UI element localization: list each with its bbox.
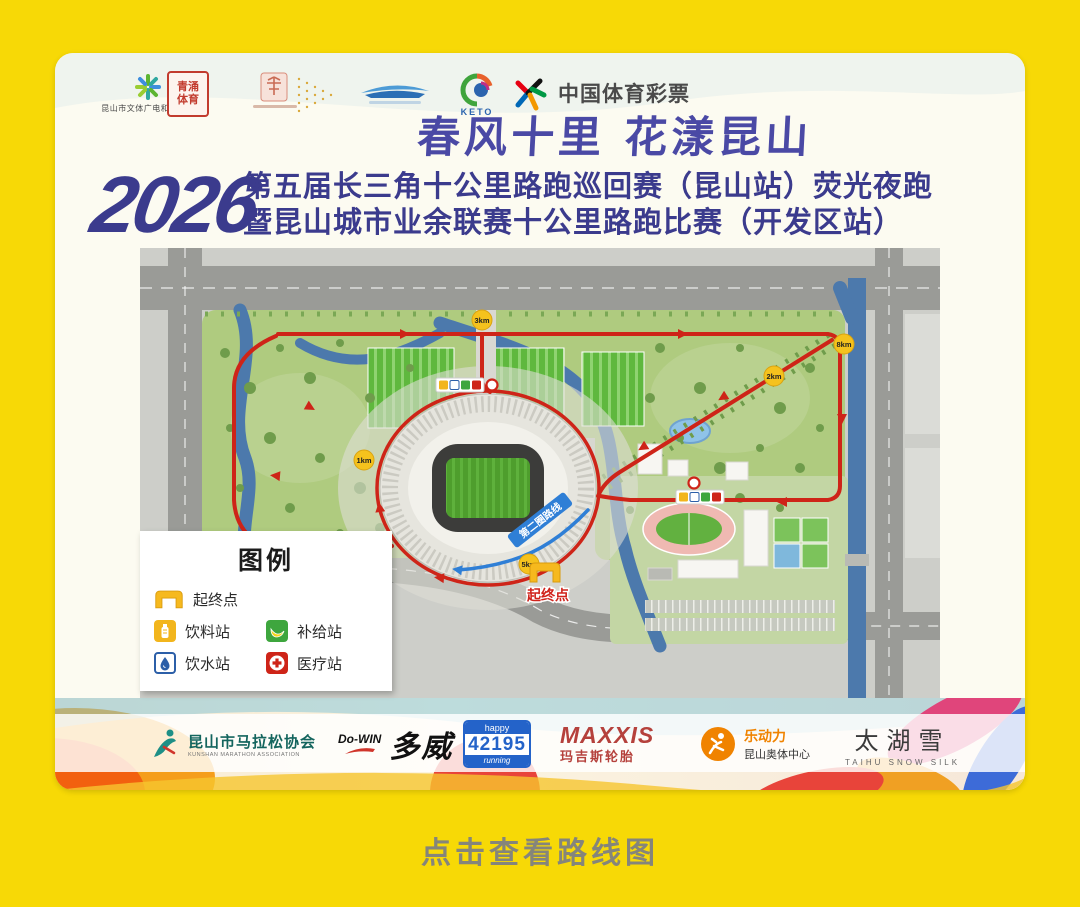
svg-text:3km: 3km bbox=[474, 316, 489, 325]
badge-number: 42195 bbox=[465, 734, 529, 755]
logo-suzhou-media-seal bbox=[233, 71, 353, 121]
canal-bridge bbox=[845, 554, 869, 566]
legend-drink-station: 饮料站 bbox=[154, 620, 266, 642]
legend-supply-label: 补给站 bbox=[297, 621, 342, 642]
event-slogan: 春风十里 花漾昆山 bbox=[373, 103, 856, 165]
legend-supply-station: 补给站 bbox=[266, 620, 378, 642]
sponsor-strip: 昆山市马拉松协会 KUNSHAN MARATHON ASSOCIATION Do… bbox=[55, 698, 1025, 790]
ledongli-name: 乐动力 bbox=[744, 726, 810, 746]
legend-water-station: 饮水站 bbox=[154, 652, 266, 674]
bureau-flower-icon bbox=[134, 73, 162, 101]
dowin-swoosh-icon bbox=[343, 746, 377, 756]
water-drop-icon bbox=[154, 652, 176, 674]
aid-station-north bbox=[436, 378, 498, 392]
bottle-icon bbox=[154, 620, 176, 642]
svg-text:8km: 8km bbox=[836, 340, 851, 349]
legend-start-label: 起终点 bbox=[193, 589, 238, 610]
event-title-line2: 暨昆山城市业余联赛十公里路跑比赛（开发区站） bbox=[243, 205, 1003, 241]
start-finish-label: 起终点 bbox=[526, 587, 569, 603]
gate-icon bbox=[154, 588, 184, 610]
association-name-en: KUNSHAN MARATHON ASSOCIATION bbox=[188, 752, 316, 758]
seal-characters: 青涌体育 bbox=[176, 81, 199, 106]
badge-happy: happy bbox=[465, 722, 529, 734]
keto-icon bbox=[460, 73, 494, 107]
legend-title: 图例 bbox=[140, 541, 392, 577]
runner-icon bbox=[150, 727, 180, 761]
athletics-track bbox=[643, 503, 735, 555]
km-marker-3km: 3km bbox=[472, 310, 492, 330]
legend-start-finish: 起终点 bbox=[154, 588, 272, 610]
svg-text:1km: 1km bbox=[356, 456, 371, 465]
page-background: 昆山市文体广电和旅游局 青涌体育 bbox=[0, 0, 1080, 907]
legend-medical-station: 医疗站 bbox=[266, 652, 378, 674]
legend-water-label: 饮水站 bbox=[185, 653, 230, 674]
km-marker-8km: 8km bbox=[834, 334, 854, 354]
event-title: 第五届长三角十公里路跑巡回赛（昆山站）荧光夜跑 暨昆山城市业余联赛十公里路跑比赛… bbox=[243, 169, 1003, 241]
taihu-name-en: TAIHU SNOW SILK bbox=[845, 758, 960, 767]
logo-42195: happy 42195 running bbox=[463, 698, 531, 790]
logo-dowin: Do-WIN 多威 bbox=[338, 698, 453, 790]
logo-ledongli: 乐动力 昆山奥体中心 bbox=[700, 698, 810, 790]
taihu-name: 太湖雪 bbox=[855, 721, 951, 756]
maxxis-name: 玛吉斯轮胎 bbox=[560, 746, 635, 765]
logo-taihu-snow: 太湖雪 TAIHU SNOW SILK bbox=[845, 698, 960, 790]
km-marker-1km: 1km bbox=[354, 450, 374, 470]
race-poster-card[interactable]: 昆山市文体广电和旅游局 青涌体育 bbox=[55, 53, 1025, 790]
event-year: 2026 bbox=[85, 159, 263, 251]
ledongli-runner-icon bbox=[700, 726, 736, 762]
badge-running: running bbox=[465, 755, 529, 766]
dowin-latin: Do-WIN bbox=[338, 732, 381, 746]
banana-icon bbox=[266, 620, 288, 642]
legend-medical-label: 医疗站 bbox=[297, 653, 342, 674]
medical-cross-icon bbox=[266, 652, 288, 674]
dowin-name: 多威 bbox=[389, 722, 453, 766]
logo-sports-seal: 青涌体育 bbox=[167, 71, 209, 117]
association-name: 昆山市马拉松协会 bbox=[188, 731, 316, 752]
maxxis-latin: MAXXIS bbox=[560, 724, 654, 746]
event-title-line1: 第五届长三角十公里路跑巡回赛（昆山站）荧光夜跑 bbox=[243, 169, 1003, 205]
logo-maxxis: MAXXIS 玛吉斯轮胎 bbox=[560, 698, 654, 790]
svg-text:2km: 2km bbox=[766, 372, 781, 381]
logo-marathon-association: 昆山市马拉松协会 KUNSHAN MARATHON ASSOCIATION bbox=[150, 698, 316, 790]
gold-dots-decoration bbox=[298, 78, 332, 112]
legend-panel: 图例 起终点 bbox=[140, 531, 392, 691]
view-route-caption: 点击查看路线图 bbox=[0, 828, 1080, 872]
ledongli-sub: 昆山奥体中心 bbox=[744, 746, 810, 762]
km-marker-2km: 2km bbox=[764, 366, 784, 386]
legend-drink-label: 饮料站 bbox=[185, 621, 230, 642]
